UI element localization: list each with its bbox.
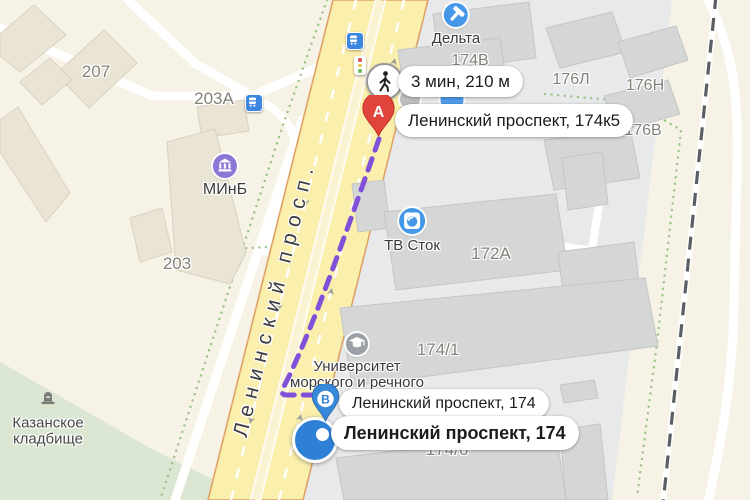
poi-cemetery-label: Казанское кладбище [5,416,91,448]
marker-b-letter: В [321,393,330,407]
building-label-176l: 176Л [552,71,589,89]
marker-a-letter: А [373,104,385,121]
poi-tv-stok[interactable]: ТВ Сток [384,208,440,254]
washer-icon [399,208,425,234]
point-b-address-text: Ленинский проспект, 174 [352,395,536,413]
route-point-a-marker[interactable]: А [360,95,397,142]
poi-cemetery[interactable]: Казанское кладбище [5,389,91,448]
poi-minb-label: МИнБ [203,182,247,198]
point-b-address-pill[interactable]: Ленинский проспект, 174 [339,389,549,418]
building-label-203: 203 [163,254,191,274]
hammer-icon [444,3,468,27]
building-label-176n: 176Н [626,77,664,95]
point-a-address-text: Ленинский проспект, 174к5 [408,111,620,131]
selected-address-pill[interactable]: Ленинский проспект, 174 [331,416,579,450]
route-point-b-marker[interactable]: В [310,384,341,427]
poi-university-label: Университет морского и речного [287,359,427,391]
map-viewport[interactable]: 207 203А 203 174В 176Л 176Н 176В 172А 17… [0,0,750,500]
route-summary-badge[interactable]: 3 мин, 210 м [398,66,523,97]
tram-stop-icon[interactable] [245,94,263,112]
building-label-207: 207 [82,62,110,82]
poi-minb[interactable]: МИнБ [203,154,247,198]
traffic-light-icon [354,56,366,75]
selected-address-text: Ленинский проспект, 174 [344,423,566,444]
building-label-203a: 203А [194,89,234,109]
route-summary-text: 3 мин, 210 м [411,72,510,92]
poi-tv-stok-label: ТВ Сток [384,238,440,254]
building-label-172a: 172А [471,244,511,264]
poi-delta[interactable]: Дельта [432,3,480,47]
poi-delta-label: Дельта [432,31,480,47]
point-a-address-pill[interactable]: Ленинский проспект, 174к5 [395,104,633,137]
poi-university[interactable]: Университет морского и речного [287,333,427,391]
selected-place-dot [316,428,329,441]
graduation-cap-icon [346,333,368,355]
tombstone-icon [38,389,58,412]
bank-icon [213,154,237,178]
tram-stop-icon[interactable] [346,32,364,50]
